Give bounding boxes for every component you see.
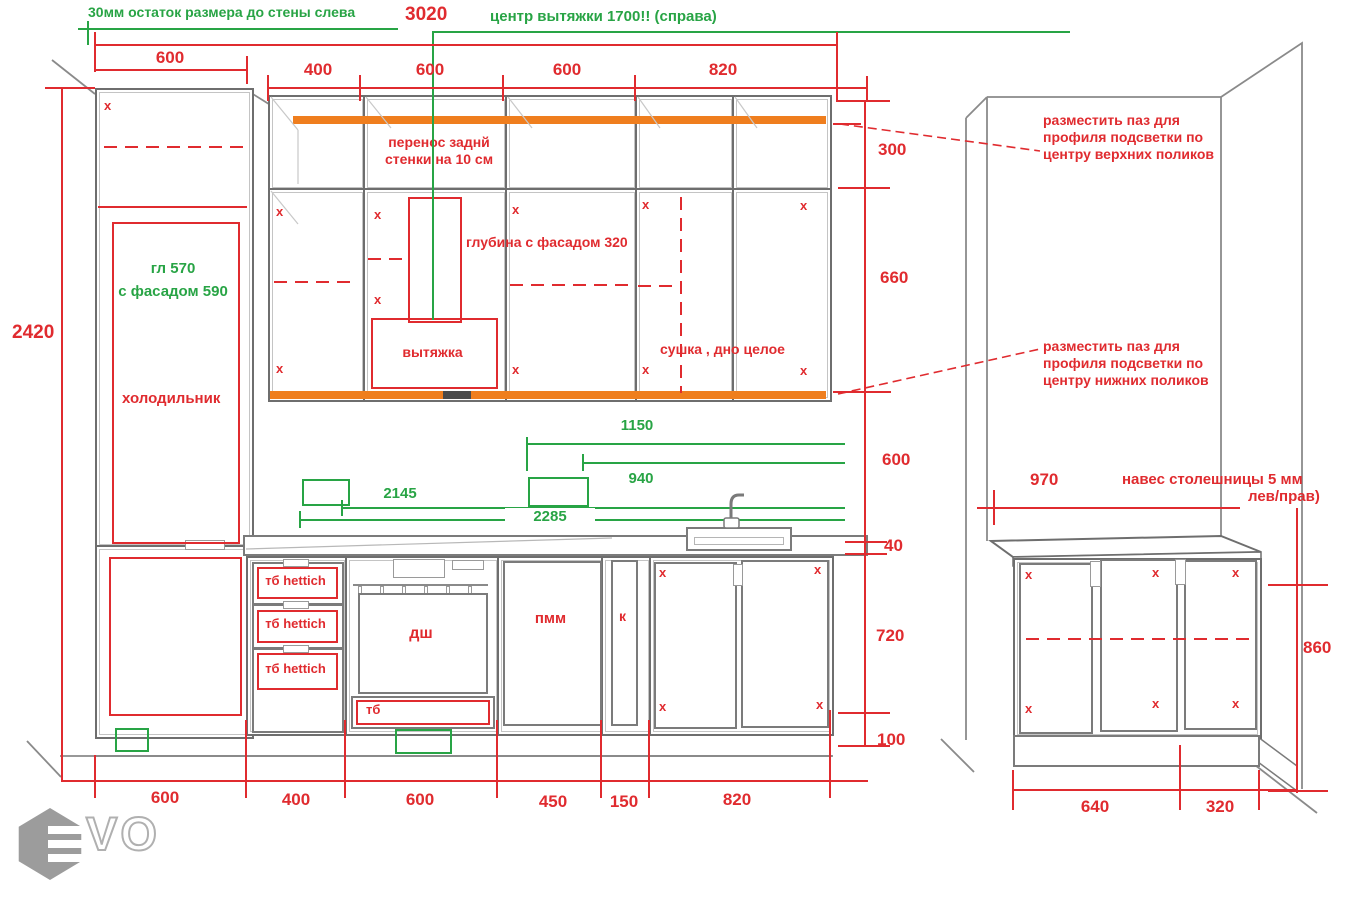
drawer-1-label: тб hettich: [257, 574, 334, 589]
overhang-note-1: навес столешницы 5 мм: [1122, 471, 1303, 488]
tick-sb3: [1258, 770, 1260, 810]
x-mark: x: [642, 363, 649, 376]
dim-line-970: [977, 507, 1240, 509]
tick-b2: [344, 720, 346, 798]
dryer-note: сушка , дно целое: [660, 341, 785, 357]
tick-u1: [267, 75, 269, 101]
upper-cabinet-4: [635, 188, 736, 402]
dim-line-3020: [95, 44, 837, 46]
dim-2145: 2145: [360, 485, 440, 502]
dim-line-right: [864, 100, 866, 746]
tick-2420-top: [45, 87, 95, 89]
tick-u3: [502, 75, 504, 101]
hood-center-note: центр вытяжки 1700!! (справа): [490, 8, 717, 25]
dim-line-side-bottom: [1013, 789, 1297, 791]
dim-line-1150: [527, 443, 845, 445]
outlet-center: [528, 477, 589, 507]
logo-bar-3: [48, 854, 86, 862]
x-mark: x: [512, 203, 519, 216]
dim-450: 450: [523, 792, 583, 812]
floor-corner-left: [27, 741, 61, 777]
top-cabinet-1: [268, 95, 367, 192]
dim-line-600-fridge: [95, 69, 248, 71]
fridge-shelf-dashed: [104, 146, 244, 148]
dim-40: 40: [884, 536, 903, 556]
leader-groove-upper: [840, 124, 1040, 151]
overhang-note-2: лев/прав): [1248, 488, 1320, 505]
oven-drawer-label: тб: [366, 703, 380, 718]
sink-basin: [694, 537, 784, 545]
left-wall-note-line: [78, 28, 398, 30]
side-door-2: [1100, 559, 1178, 732]
tick-b0: [94, 755, 96, 798]
x-mark: x: [1232, 697, 1239, 710]
side-door-3: [1184, 560, 1257, 730]
x-mark: x: [659, 700, 666, 713]
dim-600-upper-a: 600: [405, 60, 455, 80]
oven-display: [393, 559, 445, 578]
tick-3020-right: [836, 32, 838, 102]
light-profile-top: [293, 116, 826, 124]
fridge-depth-note-1: гл 570: [120, 260, 226, 277]
tick-970: [993, 490, 995, 525]
drawer-2-pull: [283, 601, 309, 609]
left-wall-note-tick: [87, 21, 89, 45]
tick-u2: [359, 75, 361, 101]
tick-r-top: [838, 100, 890, 102]
x-mark: x: [816, 698, 823, 711]
top-cabinet-3: [505, 95, 639, 192]
x-mark: x: [1152, 697, 1159, 710]
tick-r-660: [833, 391, 891, 393]
oven-door: [358, 593, 488, 694]
upper-cabinet-3: [505, 188, 639, 402]
oven-label: дш: [358, 625, 484, 643]
plinth-vent-center: [395, 729, 452, 754]
base-door-hinge: [733, 564, 743, 586]
dim-400-upper: 400: [293, 60, 343, 80]
dim-640: 640: [1065, 797, 1125, 817]
tick-b5: [648, 720, 650, 798]
tick-b1: [245, 720, 247, 798]
dim-100: 100: [877, 730, 905, 750]
dim-line-940: [583, 462, 845, 464]
tick-r-ct-top: [845, 541, 887, 543]
side-shelf-dashed: [1026, 638, 1254, 640]
tick-u5: [866, 76, 868, 102]
x-mark: x: [659, 566, 666, 579]
tick-860-top: [1268, 584, 1328, 586]
dim-600-splash: 600: [882, 450, 910, 470]
tick-r-720: [838, 712, 890, 714]
oven-handle-small: [452, 560, 484, 570]
dim-3020: 3020: [405, 4, 447, 26]
x-mark: x: [1152, 566, 1159, 579]
dim-820-upper: 820: [698, 60, 748, 80]
dim-2285: 2285: [505, 508, 595, 525]
x-mark: x: [276, 362, 283, 375]
dim-600-fridge: 600: [140, 48, 200, 68]
dim-2420: 2420: [12, 322, 54, 344]
groove-upper-note: разместить паз для профиля подсветки по …: [1043, 112, 1228, 163]
evo-logo-text: VO: [86, 806, 160, 861]
x-mark: x: [800, 364, 807, 377]
drawer-1-pull: [283, 559, 309, 567]
shelf-dashed-4: [638, 285, 678, 287]
side-panel-left-edge: [966, 97, 987, 740]
tick-b4: [600, 720, 602, 798]
logo-bar-2: [48, 840, 86, 848]
light-profile-bottom: [270, 391, 826, 399]
cargo-label: к: [611, 608, 634, 624]
dim-tick-1150: [526, 437, 528, 471]
dim-600-b1: 600: [135, 788, 195, 808]
side-hinge-1: [1090, 561, 1101, 587]
top-cabinet-4: [635, 95, 736, 192]
leader-groove-lower: [838, 349, 1040, 394]
side-countertop-top: [991, 536, 1261, 557]
cargo-door: [611, 560, 638, 726]
drawer-2-label: тб hettich: [257, 617, 334, 632]
top-cabinet-5: [732, 95, 832, 192]
left-wall-note: 30мм остаток размера до стены слева: [88, 4, 355, 20]
x-mark: x: [374, 208, 381, 221]
x-mark: x: [104, 99, 111, 112]
x-mark: x: [512, 363, 519, 376]
tick-sb2: [1179, 745, 1181, 810]
dim-300: 300: [878, 140, 906, 160]
tick-sb1: [1012, 770, 1014, 810]
dim-720: 720: [876, 626, 904, 646]
dim-600-b2: 600: [390, 790, 450, 810]
x-mark: x: [276, 205, 283, 218]
tick-b3: [496, 720, 498, 798]
back-panel-note: перенос заднй стенки на 10 см: [370, 134, 508, 168]
dim-line-uppers: [268, 87, 868, 89]
hood-center-line: [433, 31, 1070, 33]
dim-tick-2285: [299, 511, 301, 528]
leader-tick-upper: [833, 123, 861, 125]
floor-corner-side-cabinet: [941, 739, 974, 772]
x-mark: x: [814, 563, 821, 576]
dishwasher-label: пмм: [503, 610, 598, 627]
dim-820-b: 820: [707, 790, 767, 810]
tick-r-300: [838, 187, 890, 189]
shelf-dashed-1: [274, 281, 358, 283]
tick-3020-left: [94, 32, 96, 72]
logo-bar-1: [48, 826, 86, 834]
fridge-label: холодильник: [122, 390, 220, 407]
kitchen-elevation-drawing: гл 570 с фасадом 590 холодильник вытяжка…: [0, 0, 1370, 900]
plinth-vent-left: [115, 728, 149, 752]
shelf-dashed-3: [510, 284, 632, 286]
dim-970: 970: [1030, 470, 1058, 490]
side-plinth: [1013, 735, 1260, 767]
tick-u4: [634, 75, 636, 101]
dim-940: 940: [601, 470, 681, 487]
base-door-left: [654, 562, 737, 729]
dim-tick-940: [582, 454, 584, 471]
dim-line-860: [1296, 508, 1298, 793]
light-profile-gap: [443, 391, 471, 399]
dim-860: 860: [1303, 638, 1331, 658]
side-hinge-2: [1175, 559, 1186, 585]
dim-line-bottom: [62, 780, 868, 782]
fridge-divider-line: [98, 206, 247, 208]
hood-label: вытяжка: [371, 344, 494, 360]
x-mark: x: [800, 199, 807, 212]
dim-400-b: 400: [266, 790, 326, 810]
tick-600-right: [246, 56, 248, 84]
x-mark: x: [1025, 568, 1032, 581]
dim-tick-2145: [341, 500, 343, 516]
x-mark: x: [642, 198, 649, 211]
fridge-depth-note-2: с фасадом 590: [113, 283, 233, 300]
x-mark: x: [1025, 702, 1032, 715]
groove-lower-note: разместить паз для профиля подсветки по …: [1043, 338, 1243, 389]
dim-320: 320: [1190, 797, 1250, 817]
drawer-3-pull: [283, 645, 309, 653]
depth-facade-note: глубина с фасадом 320: [466, 234, 628, 250]
hood-duct-outline: [408, 197, 462, 323]
tick-b6: [829, 710, 831, 798]
divider-dashed-4: [680, 197, 682, 393]
dim-1150: 1150: [597, 417, 677, 434]
side-plinth-side: [1258, 737, 1297, 791]
plinth-bottom-line: [95, 755, 832, 757]
hood-dash: [368, 258, 410, 260]
freezer-door-outline: [109, 557, 242, 716]
drawer-3-label: тб hettich: [257, 662, 334, 677]
dim-150: 150: [594, 792, 654, 812]
x-mark: x: [374, 293, 381, 306]
dishwasher-door: [503, 561, 602, 726]
dim-600-upper-b: 600: [542, 60, 592, 80]
upper-cabinet-5: [732, 188, 832, 402]
dim-line-2420: [61, 88, 63, 782]
x-mark: x: [1232, 566, 1239, 579]
tick-r-ct-bot: [845, 553, 887, 555]
dim-660: 660: [880, 268, 908, 288]
